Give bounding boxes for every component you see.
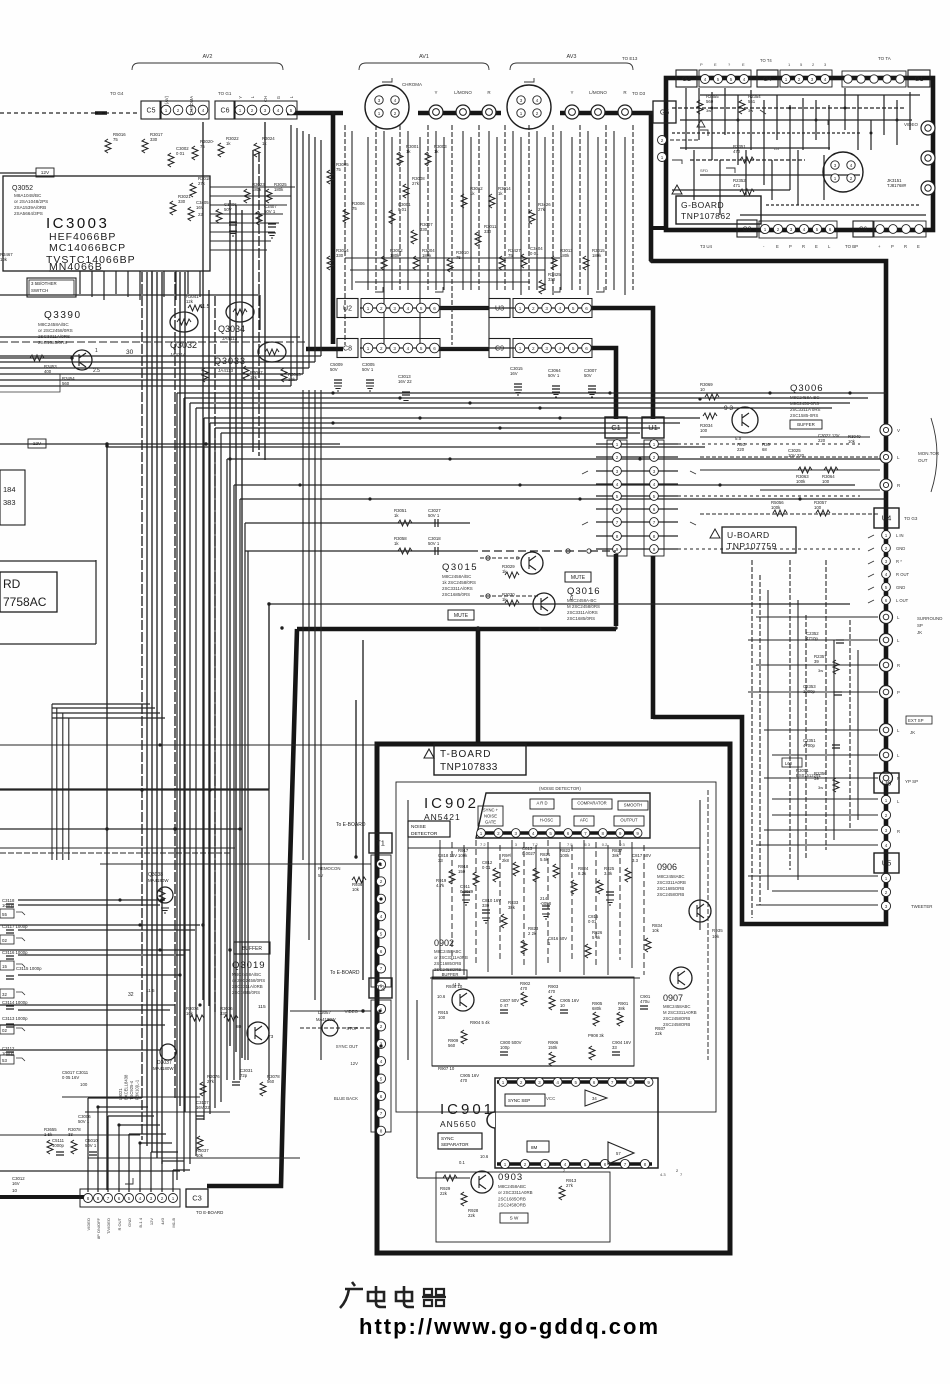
- svg-text:T2: T2: [376, 984, 385, 993]
- svg-text:1: 1: [172, 1196, 175, 1201]
- svg-text:G5: G5: [660, 110, 669, 117]
- svg-text:2: 2: [777, 227, 780, 232]
- svg-text:TO E13: TO E13: [622, 56, 638, 61]
- svg-text:68: 68: [762, 447, 767, 452]
- svg-text:C816 50V: C816 50V: [548, 936, 567, 941]
- svg-text:2SC2458ORB: 2SC2458ORB: [657, 892, 684, 897]
- svg-text:115: 115: [258, 1004, 266, 1010]
- svg-text:16V: 16V: [12, 1181, 20, 1186]
- svg-text:680k: 680k: [592, 1006, 602, 1011]
- svg-text:D3057: D3057: [318, 1010, 331, 1015]
- svg-text:2SC1685ORB: 2SC1685ORB: [657, 886, 684, 891]
- svg-text:3 5B/OTHER: 3 5B/OTHER: [31, 281, 57, 286]
- svg-text:4: 4: [277, 108, 280, 113]
- svg-text:TNP107759: TNP107759: [727, 541, 777, 551]
- svg-text:2: 2: [532, 306, 535, 311]
- svg-text:SWITCH: SWITCH: [31, 288, 48, 293]
- svg-text:5: 5: [730, 77, 733, 82]
- svg-text:T/VIDEO: T/VIDEO: [106, 1218, 111, 1234]
- svg-text:IC3003: IC3003: [46, 215, 109, 232]
- svg-text:38k: 38k: [612, 853, 620, 858]
- svg-text:E: E: [742, 62, 745, 67]
- svg-text:or 2SC3311A0RB: or 2SC3311A0RB: [434, 955, 468, 960]
- svg-text:4: 4: [407, 346, 410, 351]
- svg-text:GND: GND: [896, 585, 905, 590]
- svg-text:561: 561: [748, 99, 756, 104]
- svg-text:8M: 8M: [531, 1145, 538, 1150]
- svg-text:22k: 22k: [468, 1213, 476, 1218]
- svg-text:330: 330: [482, 903, 490, 908]
- svg-text:72p: 72p: [240, 1073, 248, 1078]
- svg-text:5: 5: [420, 306, 423, 311]
- svg-text:8P ON/OFF: 8P ON/OFF: [96, 1217, 101, 1239]
- svg-text:R904 5 4k: R904 5 4k: [470, 1020, 490, 1025]
- svg-text:C3116 1000p: C3116 1000p: [2, 950, 28, 955]
- svg-text:1: 1: [95, 348, 98, 354]
- svg-text:MUTE: MUTE: [454, 613, 469, 619]
- svg-text:100k: 100k: [796, 479, 806, 484]
- svg-text:3w: 3w: [706, 108, 711, 113]
- svg-text:1: 1: [367, 306, 370, 311]
- svg-text:L/MONO: L/MONO: [454, 90, 472, 95]
- svg-text:4700p: 4700p: [803, 743, 816, 748]
- svg-text:16V: 16V: [510, 371, 518, 376]
- svg-text:8: 8: [380, 1129, 383, 1134]
- svg-text:5: 5: [290, 108, 293, 113]
- svg-text:7: 7: [380, 966, 383, 971]
- svg-text:MA4180W: MA4180W: [153, 1066, 174, 1071]
- svg-text:7: 7: [624, 1162, 627, 1167]
- svg-text:OUTPUT: OUTPUT: [620, 818, 638, 823]
- svg-text:TO G1: TO G1: [218, 91, 232, 96]
- svg-text:B-1 4: B-1 4: [138, 1217, 143, 1227]
- svg-text:2: 2: [653, 455, 656, 460]
- svg-text:2: 2: [885, 546, 888, 551]
- svg-text:6: 6: [616, 507, 619, 512]
- svg-text:2SC3311A/0RS: 2SC3311A/0RS: [567, 610, 598, 615]
- svg-text:7: 7: [653, 520, 656, 525]
- svg-text:0 47: 0 47: [500, 1003, 509, 1008]
- svg-text:6: 6: [118, 1196, 121, 1201]
- svg-text:10: 10: [560, 1003, 565, 1008]
- svg-text:330: 330: [178, 199, 186, 204]
- svg-text:330: 330: [420, 227, 428, 232]
- svg-text:2: 2: [394, 111, 397, 116]
- svg-text:3: 3: [545, 346, 548, 351]
- svg-text:3: 3: [545, 306, 548, 311]
- svg-text:100k: 100k: [771, 505, 781, 510]
- svg-text:JK: JK: [910, 730, 915, 735]
- svg-text:Y: Y: [570, 90, 573, 95]
- svg-text:330: 330: [336, 253, 344, 258]
- svg-text:C1: C1: [611, 423, 621, 432]
- svg-text:3: 3: [653, 469, 656, 474]
- svg-text:7: 7: [611, 1080, 614, 1085]
- svg-text:50V: 50V: [330, 367, 338, 372]
- svg-text:M8C2458A-BC: M8C2458A-BC: [790, 395, 820, 400]
- svg-text:27k: 27k: [538, 207, 546, 212]
- svg-text:400: 400: [44, 369, 52, 374]
- svg-text:1: 1: [519, 346, 522, 351]
- svg-text:CH: CH: [263, 96, 268, 102]
- svg-text:2k8: 2k8: [502, 858, 510, 863]
- svg-text:4: 4: [824, 77, 827, 82]
- svg-text:1: 1: [764, 227, 767, 232]
- svg-text:2: 2: [885, 890, 888, 895]
- svg-text:IC901: IC901: [440, 1101, 495, 1118]
- svg-text:RD: RD: [3, 577, 21, 591]
- svg-text:C3113 1000p: C3113 1000p: [2, 1016, 28, 1021]
- svg-text:2SC2458ORB: 2SC2458ORB: [663, 1022, 690, 1027]
- svg-text:3: 3: [264, 108, 267, 113]
- svg-text:P: P: [897, 690, 900, 695]
- svg-text:15: 15: [2, 964, 7, 969]
- svg-text:3: 3: [811, 77, 814, 82]
- svg-text:2: 2: [520, 1080, 523, 1085]
- svg-text:E: E: [815, 244, 818, 249]
- svg-text:50V 1: 50V 1: [264, 209, 276, 214]
- svg-text:11.5: 11.5: [200, 304, 210, 310]
- svg-text:2SC1585-0RS: 2SC1585-0RS: [790, 413, 818, 418]
- svg-text:0 05 16V: 0 05 16V: [62, 1075, 79, 1080]
- svg-text:VIDEO: VIDEO: [904, 122, 919, 127]
- svg-text:3: 3: [393, 306, 396, 311]
- svg-text:9: 9: [636, 831, 639, 836]
- svg-text:EXCELL8438: EXCELL8438: [124, 1074, 129, 1100]
- svg-text:330: 330: [484, 229, 492, 234]
- svg-text:7: 7: [380, 1111, 383, 1116]
- svg-text:10: 10: [700, 387, 705, 392]
- svg-text:7 2: 7 2: [480, 842, 486, 847]
- svg-text:9: 9: [619, 831, 622, 836]
- svg-text:U1: U1: [648, 423, 658, 432]
- svg-text:330: 330: [150, 137, 158, 142]
- svg-text:39: 39: [814, 659, 819, 664]
- svg-text:5: 5: [128, 1196, 131, 1201]
- svg-text:150k: 150k: [548, 1045, 558, 1050]
- svg-text:GND: GND: [127, 1218, 132, 1227]
- svg-text:SYNC SEP: SYNC SEP: [508, 1098, 530, 1103]
- svg-text:5: 5: [420, 346, 423, 351]
- svg-text:SYNC OUT: SYNC OUT: [336, 1044, 359, 1049]
- svg-text:P: P: [789, 244, 792, 249]
- svg-text:M9C2458-0RS: M9C2458-0RS: [790, 401, 819, 406]
- svg-text:R907 10: R907 10: [438, 1066, 455, 1071]
- svg-text:T3 U4: T3 U4: [700, 244, 713, 249]
- svg-text:BUFFER: BUFFER: [442, 972, 459, 977]
- svg-text:M1-B: M1-B: [171, 1218, 176, 1228]
- svg-text:2SC1685/0RS: 2SC1685/0RS: [232, 990, 260, 995]
- svg-text:53: 53: [2, 1058, 7, 1063]
- svg-text:12V: 12V: [41, 170, 50, 176]
- svg-text:0902: 0902: [434, 938, 454, 948]
- svg-text:100: 100: [80, 1082, 88, 1087]
- svg-text:2: 2: [661, 138, 664, 143]
- svg-text:150: 150: [458, 869, 466, 874]
- svg-text:AN5650: AN5650: [440, 1119, 477, 1129]
- svg-text:55: 55: [2, 912, 7, 917]
- svg-text:2: 2: [532, 346, 535, 351]
- svg-text:L3021: L3021: [118, 1088, 123, 1100]
- svg-text:2SC1685/0RS: 2SC1685/0RS: [567, 616, 595, 621]
- svg-text:73: 73: [268, 1034, 274, 1040]
- svg-text:2SC3311A/0RS: 2SC3311A/0RS: [442, 586, 473, 591]
- svg-text:8: 8: [644, 1162, 647, 1167]
- svg-text:JA4113: JA4113: [218, 368, 234, 373]
- svg-text:(AV): (AV): [164, 95, 169, 104]
- svg-text:JK: JK: [917, 630, 922, 635]
- svg-text:G-BOARD: G-BOARD: [681, 200, 724, 210]
- svg-text:4: 4: [556, 1080, 559, 1085]
- svg-text:27k: 27k: [566, 1183, 574, 1188]
- svg-text:2: 2: [885, 813, 888, 818]
- svg-text:470: 470: [520, 986, 528, 991]
- svg-text:10k: 10k: [848, 439, 856, 444]
- svg-text:G2: G2: [682, 76, 691, 83]
- svg-text:R: R: [897, 829, 900, 834]
- svg-text:2: 2: [798, 77, 801, 82]
- svg-text:G1: G1: [915, 76, 924, 83]
- svg-text:8: 8: [97, 1196, 100, 1201]
- svg-text:3w: 3w: [818, 785, 823, 790]
- svg-text:TO T4: TO T4: [760, 58, 772, 63]
- svg-text:57: 57: [616, 1151, 621, 1156]
- svg-text:3: 3: [520, 98, 523, 103]
- svg-text:3: 3: [790, 227, 793, 232]
- svg-text:L IN: L IN: [896, 533, 904, 538]
- svg-text:TNP107862: TNP107862: [681, 211, 731, 221]
- svg-text:3: 3: [150, 1196, 153, 1201]
- svg-text:M8C2458ABC: M8C2458ABC: [498, 1184, 526, 1189]
- svg-text:U5: U5: [882, 859, 892, 868]
- svg-text:2: 2: [524, 1162, 527, 1167]
- svg-text:Q3015: Q3015: [442, 562, 478, 573]
- svg-text:YP SP: YP SP: [905, 779, 918, 784]
- svg-text:0 01: 0 01: [530, 251, 539, 256]
- svg-text:1: 1: [165, 108, 168, 113]
- svg-text:U6: U6: [882, 779, 892, 788]
- svg-text:L60: L60: [785, 761, 793, 766]
- svg-text:2SC1685ORB: 2SC1685ORB: [498, 1196, 526, 1201]
- svg-text:4: 4: [885, 843, 888, 848]
- svg-text:SEPARATOR: SEPARATOR: [441, 1142, 469, 1147]
- svg-text:470: 470: [460, 1078, 468, 1083]
- svg-text:50V 1: 50V 1: [362, 367, 374, 372]
- svg-text:4: 4: [407, 306, 410, 311]
- svg-text:5: 5: [380, 1076, 383, 1081]
- svg-text:0906: 0906: [657, 862, 677, 872]
- svg-text:2: 2: [177, 108, 180, 113]
- svg-text:3.3k: 3.3k: [604, 871, 613, 876]
- svg-text:2SC2458ORB: 2SC2458ORB: [498, 1203, 526, 1208]
- svg-text:1: 1: [480, 831, 483, 836]
- svg-text:8: 8: [616, 534, 619, 539]
- svg-text:AV3: AV3: [567, 54, 577, 60]
- svg-text:30: 30: [126, 349, 134, 356]
- svg-text:3.3: 3.3: [632, 858, 639, 863]
- svg-text:CHROMA: CHROMA: [402, 82, 422, 87]
- svg-text:GATE: GATE: [485, 820, 496, 825]
- svg-text:R OUT: R OUT: [117, 1217, 122, 1230]
- svg-text:100k: 100k: [560, 853, 570, 858]
- svg-text:10k: 10k: [0, 257, 8, 262]
- svg-text:To E-BOARD: To E-BOARD: [330, 970, 360, 976]
- svg-text:8: 8: [629, 1080, 632, 1085]
- svg-text:4: 4: [536, 98, 539, 103]
- svg-text:100: 100: [822, 479, 830, 484]
- svg-text:38k: 38k: [618, 1006, 626, 1011]
- svg-text:1: 1: [367, 346, 370, 351]
- svg-text:2: 2: [251, 108, 254, 113]
- svg-text:AV2: AV2: [203, 54, 213, 60]
- svg-text:P908 3k: P908 3k: [588, 1033, 605, 1038]
- svg-text:2: 2: [616, 455, 619, 460]
- svg-text:2SC1685ORB: 2SC1685ORB: [434, 961, 461, 966]
- svg-text:AFC: AFC: [580, 818, 588, 823]
- svg-text:R936 10: R936 10: [446, 984, 463, 989]
- svg-text:4710p: 4710p: [806, 636, 819, 641]
- svg-text:9: 9: [616, 547, 619, 552]
- svg-text:E: E: [917, 244, 920, 249]
- svg-text:or 2SC2458/0RS: or 2SC2458/0RS: [232, 978, 265, 983]
- svg-text:5V: 5V: [318, 873, 323, 878]
- svg-text:BUFFER: BUFFER: [242, 946, 262, 952]
- svg-text:or 2SA1048/2PS: or 2SA1048/2PS: [14, 199, 48, 204]
- svg-text:02: 02: [2, 938, 7, 943]
- svg-text:(NOISE DETECTOR): (NOISE DETECTOR): [539, 786, 581, 791]
- svg-text:http://www.go-gddq.com: http://www.go-gddq.com: [359, 1314, 660, 1339]
- svg-text:16V 22: 16V 22: [196, 1105, 210, 1110]
- svg-text:NOISE: NOISE: [484, 814, 497, 819]
- svg-text:M8C2458A/BC: M8C2458A/BC: [442, 574, 471, 579]
- svg-text:or 2SC2458/0RS: or 2SC2458/0RS: [38, 328, 73, 333]
- svg-text:SP: SP: [917, 623, 923, 628]
- svg-text:S W: S W: [510, 1216, 519, 1221]
- svg-text:2: 2: [380, 879, 383, 884]
- svg-text:560: 560: [62, 381, 70, 386]
- svg-text:5: 5: [572, 306, 575, 311]
- svg-text:75: 75: [113, 137, 118, 142]
- svg-text:6: 6: [585, 346, 588, 351]
- svg-text:4: 4: [532, 831, 535, 836]
- svg-text:100: 100: [700, 428, 708, 433]
- svg-text:5 6k: 5 6k: [592, 935, 601, 940]
- svg-text:1000p: 1000p: [803, 689, 816, 694]
- svg-text:NOISE: NOISE: [411, 824, 426, 830]
- svg-text:1: 1: [885, 798, 888, 803]
- svg-text:11 5: 11 5: [146, 988, 155, 993]
- svg-text:L/MONO: L/MONO: [589, 90, 607, 95]
- svg-text:180k: 180k: [274, 187, 284, 192]
- svg-text:0: 0: [516, 556, 519, 562]
- svg-text:33: 33: [438, 858, 443, 863]
- svg-text:6: 6: [433, 306, 436, 311]
- svg-text:T1: T1: [376, 839, 385, 848]
- svg-text:16V 22: 16V 22: [398, 379, 412, 384]
- svg-text:3w: 3w: [748, 108, 753, 113]
- svg-text:C3115 1000p: C3115 1000p: [16, 966, 42, 971]
- svg-text:CHROMA: CHROMA: [189, 96, 194, 115]
- svg-text:10k: 10k: [196, 1153, 204, 1158]
- svg-text:6: 6: [604, 1162, 607, 1167]
- svg-text:6: 6: [829, 227, 832, 232]
- svg-text:4#3: 4#3: [160, 1217, 165, 1224]
- svg-text:4: 4: [743, 77, 746, 82]
- svg-text:32: 32: [2, 992, 7, 997]
- svg-text:12V: 12V: [149, 1218, 154, 1225]
- svg-text:MA4180W: MA4180W: [316, 1017, 336, 1022]
- svg-text:R OUT: R OUT: [896, 572, 909, 577]
- svg-text:4: 4: [616, 482, 619, 487]
- svg-text:0 01: 0 01: [398, 207, 407, 212]
- svg-text:180k: 180k: [390, 253, 400, 258]
- svg-text:5: 5: [816, 227, 819, 232]
- svg-text:471: 471: [733, 183, 741, 188]
- svg-text:M8C2458A/BC: M8C2458A/BC: [38, 322, 69, 327]
- svg-text:6: 6: [593, 1080, 596, 1085]
- svg-text:80: 80: [236, 1024, 242, 1030]
- svg-text:1: 1: [239, 108, 242, 113]
- svg-text:MC14066BCP: MC14066BCP: [49, 242, 126, 254]
- svg-text:10k: 10k: [652, 928, 660, 933]
- svg-text:-0058: -0058: [540, 901, 552, 906]
- svg-text:4.7k: 4.7k: [436, 883, 445, 888]
- svg-text:DETECTOR: DETECTOR: [411, 831, 438, 837]
- svg-text:8: 8: [87, 1196, 90, 1201]
- svg-text:C3114 1000p: C3114 1000p: [2, 1000, 28, 1005]
- svg-text:1: 1: [885, 876, 888, 881]
- svg-text:2: 2: [850, 176, 853, 181]
- svg-text:1: 1: [653, 442, 656, 447]
- svg-text:9: 9: [647, 1080, 650, 1085]
- svg-text:2SC3311A 0RS: 2SC3311A 0RS: [790, 407, 821, 412]
- svg-text:10k: 10k: [352, 887, 360, 892]
- svg-text:6: 6: [380, 1094, 383, 1099]
- svg-text:2SC3311A/0RB: 2SC3311A/0RB: [232, 984, 263, 989]
- svg-text:M8C2458ABC: M8C2458ABC: [657, 874, 684, 879]
- svg-text:TO D3: TO D3: [632, 91, 646, 96]
- svg-text:4: 4: [564, 1162, 567, 1167]
- svg-text:TO G4: TO G4: [110, 91, 124, 96]
- svg-text:34: 34: [592, 1096, 597, 1101]
- svg-text:560: 560: [448, 1043, 456, 1048]
- svg-text:MUTE: MUTE: [571, 575, 586, 581]
- svg-text:R: R: [897, 663, 900, 668]
- svg-text:1: 1: [785, 77, 788, 82]
- svg-text:1: 1: [661, 155, 664, 160]
- svg-text:383: 383: [3, 498, 16, 507]
- svg-text:4: 4: [380, 1059, 383, 1064]
- svg-text:Q3006: Q3006: [790, 383, 824, 394]
- svg-text:SFD: SFD: [700, 168, 708, 173]
- svg-text:5: 5: [380, 931, 383, 936]
- svg-text:4: 4: [653, 482, 656, 487]
- svg-text:6: 6: [567, 831, 570, 836]
- svg-text:or 2SC3311A0RB: or 2SC3311A0RB: [498, 1190, 533, 1195]
- svg-text:TJ81768#: TJ81768#: [887, 183, 907, 188]
- svg-text:50V 1: 50V 1: [548, 373, 560, 378]
- svg-text:10k: 10k: [712, 934, 720, 939]
- svg-text:3: 3: [885, 904, 888, 909]
- svg-text:470: 470: [733, 149, 741, 154]
- svg-text:50V: 50V: [584, 373, 592, 378]
- svg-text:R935: R935: [712, 928, 723, 933]
- svg-text:C5: C5: [147, 108, 156, 115]
- svg-text:2: 2: [497, 831, 500, 836]
- svg-text:R *: R *: [896, 559, 902, 564]
- svg-text:A R D: A R D: [537, 801, 548, 806]
- svg-text:3: 3: [378, 98, 381, 103]
